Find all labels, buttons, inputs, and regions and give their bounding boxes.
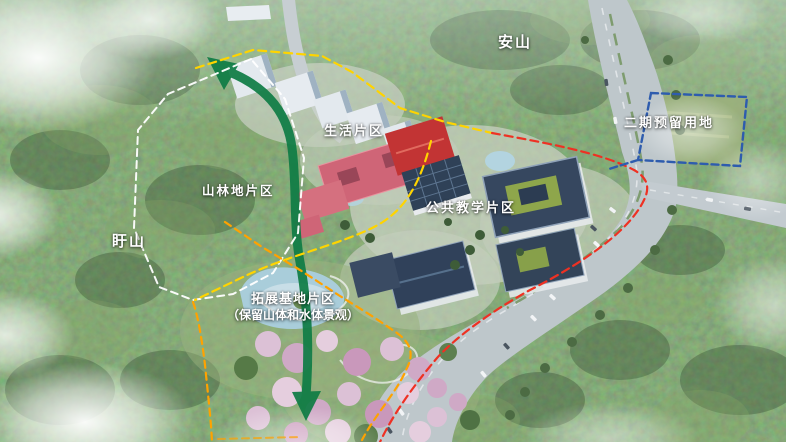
- label-zone-teaching: 公共教学片区: [426, 197, 516, 216]
- label-zone-expansion: 拓展基地片区 （保留山体和水体景观）: [188, 291, 398, 323]
- label-mountain-xushan: 盱山: [112, 230, 146, 251]
- rendering-canvas: [0, 0, 786, 442]
- label-zone-expansion-title: 拓展基地片区: [188, 291, 398, 307]
- label-zone-living: 生活片区: [324, 120, 384, 139]
- label-zone-forest: 山林地片区: [202, 180, 275, 199]
- label-zone-expansion-note: （保留山体和水体景观）: [188, 307, 398, 323]
- small-lake: [485, 151, 515, 171]
- masterplan-rendering: 安山 盱山 二期预留用地 生活片区 山林地片区 公共教学片区 拓展基地片区 （保…: [0, 0, 786, 442]
- label-mountain-anshan: 安山: [498, 31, 532, 52]
- label-zone-phase2: 二期预留用地: [624, 112, 714, 131]
